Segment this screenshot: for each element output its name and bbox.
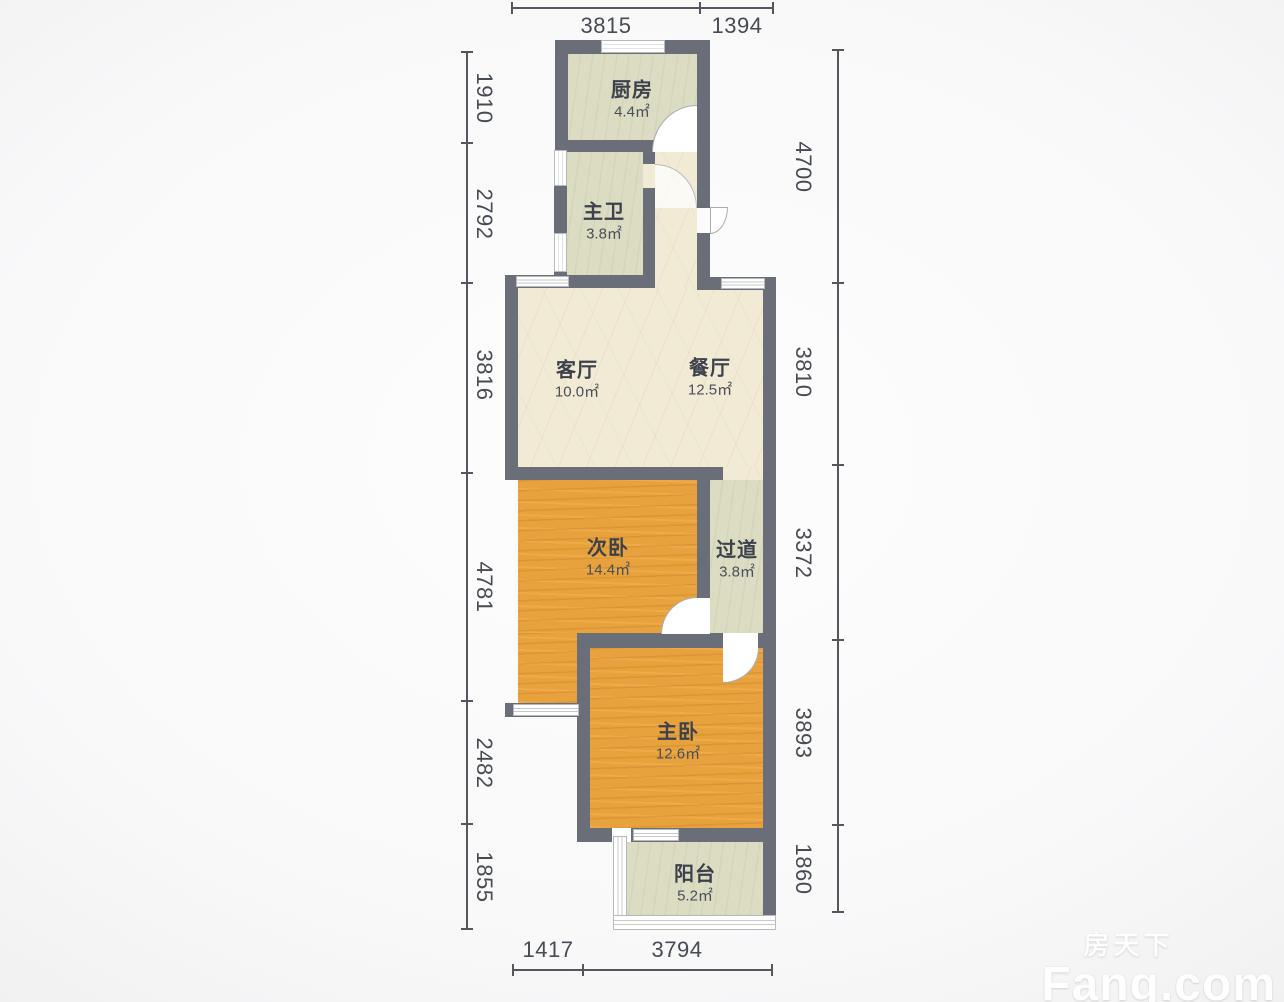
balcony-window-bottom bbox=[613, 915, 776, 930]
room-name: 主卧 bbox=[656, 721, 700, 745]
dimension-line-right bbox=[837, 50, 839, 913]
room-area: 12.5㎡ bbox=[688, 381, 732, 400]
second-bedroom-floor-lower bbox=[518, 633, 577, 703]
room-area: 10.0㎡ bbox=[555, 383, 599, 402]
dimension-label-right-2: 3810 bbox=[790, 347, 816, 398]
wall-bedroom2-right bbox=[697, 467, 710, 599]
fang-watermark: 房天下 Fang.com bbox=[1041, 925, 1276, 1002]
bedroom2-door-gap bbox=[697, 598, 710, 634]
room-label-living-room: 客厅 10.0㎡ bbox=[555, 359, 599, 402]
room-label-hallway: 过道 3.8㎡ bbox=[716, 539, 758, 582]
watermark-logo-text: Fang.com bbox=[1041, 962, 1276, 1002]
entry-door-leaf bbox=[710, 207, 728, 234]
window-bath-left-lower bbox=[554, 233, 567, 272]
dimension-label-right-4: 3893 bbox=[790, 708, 816, 759]
dimension-label-left-1: 1910 bbox=[471, 73, 497, 124]
room-label-kitchen: 厨房 4.4㎡ bbox=[611, 79, 653, 122]
room-area: 12.6㎡ bbox=[656, 745, 700, 764]
wall-bedroom1-top bbox=[577, 633, 723, 648]
dimension-label-right-3: 3372 bbox=[790, 528, 816, 579]
room-name: 客厅 bbox=[555, 359, 599, 383]
dimension-tick bbox=[512, 964, 514, 976]
wall-kitchen-left bbox=[555, 40, 568, 152]
dimension-tick bbox=[772, 2, 774, 14]
window-dining-top-right bbox=[721, 278, 765, 289]
dimension-label-left-5: 2482 bbox=[471, 738, 497, 789]
wall-right-upper-2 bbox=[697, 233, 710, 279]
room-area: 14.4㎡ bbox=[586, 561, 630, 580]
window-bedroom1-bottom bbox=[633, 829, 679, 841]
bath-door-gap bbox=[643, 164, 655, 188]
hallway-entrance-floor bbox=[723, 467, 763, 480]
window-kitchen-top bbox=[601, 40, 665, 53]
room-label-master-bath: 主卫 3.8㎡ bbox=[583, 201, 625, 244]
dimension-tick bbox=[511, 2, 513, 14]
room-label-balcony: 阳台 5.2㎡ bbox=[674, 863, 716, 906]
wall-right-upper bbox=[697, 40, 710, 208]
dimension-tick bbox=[582, 964, 584, 976]
balcony-window-left bbox=[613, 836, 627, 923]
wall-living-bedroom-divider bbox=[505, 467, 723, 480]
dimension-label-left-2: 2792 bbox=[471, 189, 497, 240]
dimension-tick bbox=[461, 823, 473, 825]
dimension-tick bbox=[461, 282, 473, 284]
room-area: 3.8㎡ bbox=[583, 225, 625, 244]
room-area: 5.2㎡ bbox=[674, 887, 716, 906]
room-label-dining-room: 餐厅 12.5㎡ bbox=[688, 357, 732, 400]
dimension-tick bbox=[461, 51, 473, 53]
dimension-tick bbox=[461, 928, 473, 930]
dimension-tick bbox=[461, 142, 473, 144]
room-label-second-bedroom: 次卧 14.4㎡ bbox=[586, 537, 630, 580]
room-name: 厨房 bbox=[611, 79, 653, 103]
dimension-tick bbox=[832, 282, 844, 284]
wall-bath-right bbox=[643, 186, 655, 278]
dimension-tick bbox=[699, 2, 701, 14]
wall-living-left bbox=[505, 275, 518, 480]
watermark-chinese-text: 房天下 bbox=[1083, 925, 1276, 962]
room-name: 过道 bbox=[716, 539, 758, 563]
wall-bedroom1-top-right bbox=[758, 633, 776, 648]
room-area: 3.8㎡ bbox=[716, 563, 758, 582]
dimension-label-top-2: 1394 bbox=[712, 13, 763, 39]
dimension-label-right-5: 1860 bbox=[790, 844, 816, 895]
dimension-tick bbox=[832, 49, 844, 51]
dimension-tick bbox=[461, 472, 473, 474]
dimension-line-bottom bbox=[513, 969, 772, 971]
room-area: 4.4㎡ bbox=[611, 103, 653, 122]
room-label-master-bedroom: 主卧 12.6㎡ bbox=[656, 721, 700, 764]
dimension-line-left bbox=[466, 52, 468, 930]
window-bath-left-upper bbox=[554, 150, 567, 186]
dimension-label-left-3: 3816 bbox=[471, 350, 497, 401]
room-name: 阳台 bbox=[674, 863, 716, 887]
dimension-label-left-6: 1855 bbox=[471, 852, 497, 903]
window-living-top-left bbox=[516, 276, 569, 287]
floor-plan-canvas: 厨房 4.4㎡ 主卫 3.8㎡ 客厅 10.0㎡ 餐厅 12.5㎡ 次卧 14.… bbox=[0, 0, 1284, 1002]
dimension-label-top-1: 3815 bbox=[581, 13, 632, 39]
dimension-label-bottom-2: 3794 bbox=[652, 937, 703, 963]
dimension-tick bbox=[832, 464, 844, 466]
wall-bedroom1-left bbox=[577, 633, 590, 842]
dimension-tick bbox=[771, 964, 773, 976]
dimension-label-left-4: 4781 bbox=[471, 562, 497, 613]
dimension-tick bbox=[832, 824, 844, 826]
window-bedroom2-bottom bbox=[513, 704, 579, 716]
room-name: 主卫 bbox=[583, 201, 625, 225]
wall-kitchen-bottom bbox=[555, 140, 655, 152]
room-name: 餐厅 bbox=[688, 357, 732, 381]
dimension-tick bbox=[461, 700, 473, 702]
dimension-tick bbox=[832, 639, 844, 641]
dimension-label-bottom-1: 1417 bbox=[523, 937, 574, 963]
dimension-tick bbox=[832, 911, 844, 913]
bedroom1-door-gap bbox=[723, 633, 758, 648]
dimension-label-right-1: 4700 bbox=[790, 142, 816, 193]
dimension-line-top bbox=[512, 7, 773, 9]
room-name: 次卧 bbox=[586, 537, 630, 561]
